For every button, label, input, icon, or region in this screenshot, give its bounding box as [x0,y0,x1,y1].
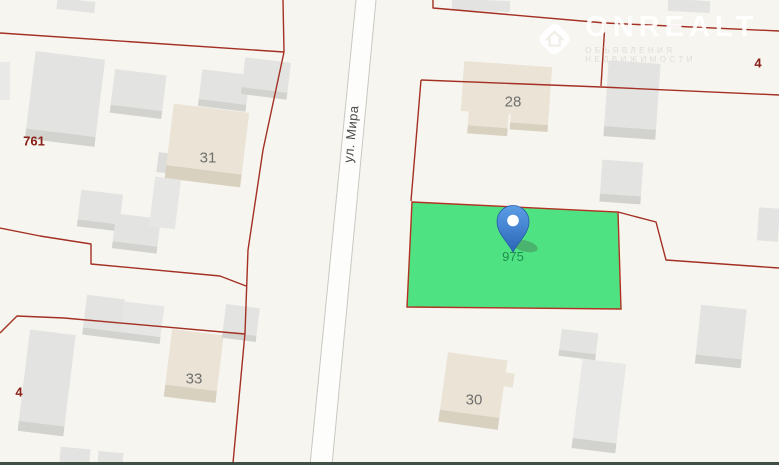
street-road [310,0,376,465]
building-footprint [668,0,711,13]
building-house-31 [156,103,250,188]
buildings-layer [0,0,779,465]
map-layers: 975 [0,0,779,465]
building-footprint [603,60,660,139]
parcel-label-4-left: 4 [15,385,22,400]
house-number-33: 33 [186,371,203,388]
parcel-label-4-right: 4 [754,56,761,71]
building-footprint [82,295,164,344]
building-footprint [110,69,167,119]
house-number-31: 31 [200,150,217,167]
building-footprint [56,0,95,13]
house-number-30: 30 [466,392,483,409]
building-footprint [599,160,643,205]
building-footprint [59,447,90,465]
building-footprint [18,330,76,437]
building-footprint [241,57,291,99]
map-canvas[interactable]: 975 ул. Мира 761 4 4 31 28 33 30 ONREALT… [0,0,779,465]
building-footprint [757,207,779,241]
building-house-33 [164,329,224,403]
building-footprint [149,177,181,230]
house-number-28: 28 [505,94,522,111]
parcel-label-761: 761 [23,134,45,149]
building-footprint [695,305,747,368]
building-footprint [0,62,10,100]
building-footprint [572,359,627,454]
building-footprint [222,304,260,342]
building-footprint [558,329,598,360]
